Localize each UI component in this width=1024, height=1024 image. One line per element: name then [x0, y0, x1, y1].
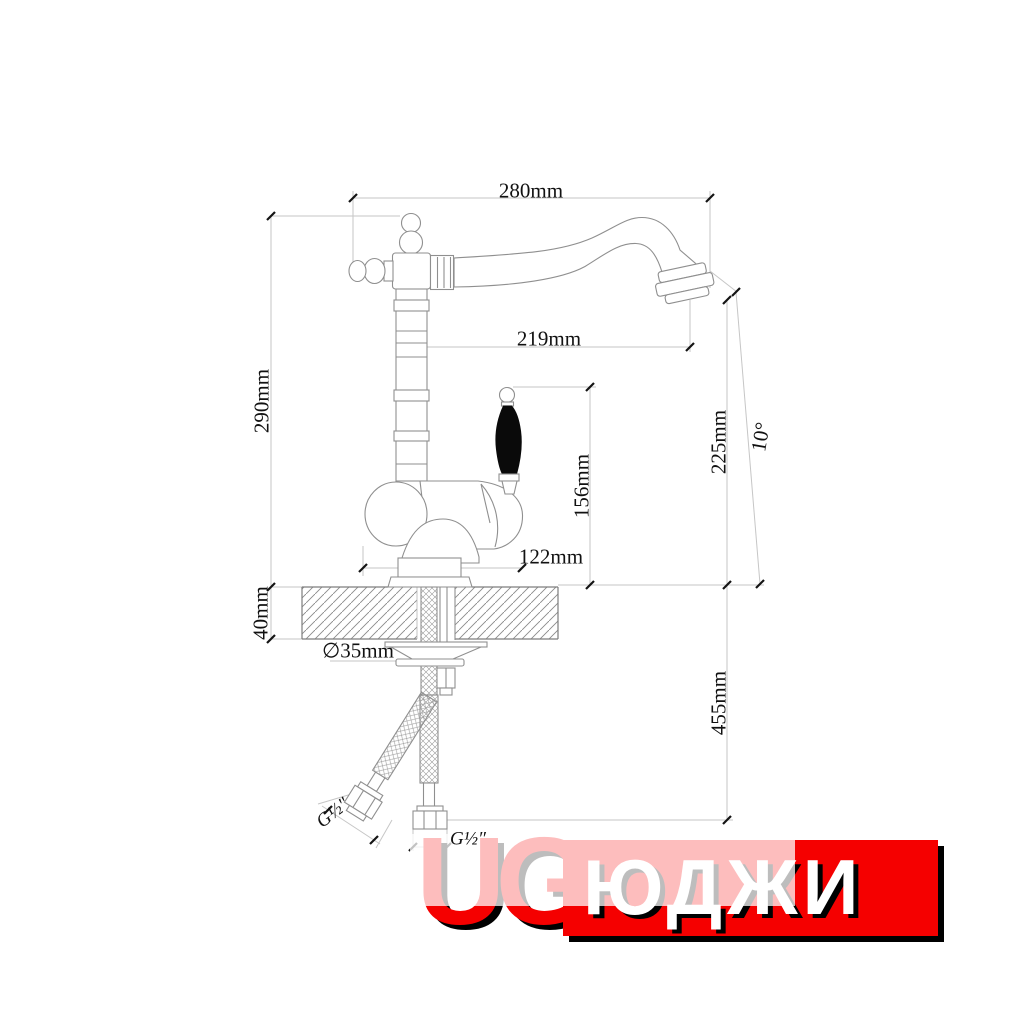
faucet-dimension-drawing: UG ЮДЖИ 280mm 219mm 290mm 40mm 225mm 10°…: [0, 0, 1024, 1024]
finial-ball-top: [402, 214, 421, 233]
logo-cyrillic: ЮДЖИ: [563, 840, 938, 934]
faucet-body: [349, 214, 716, 588]
column: [396, 289, 427, 481]
threaded-shank: [421, 587, 437, 695]
logo-box: ЮДЖИ: [563, 840, 938, 936]
base-flange: [388, 577, 472, 587]
mounting-bracket: [385, 642, 487, 647]
valve-cross: [393, 253, 431, 289]
handle-lever: [496, 406, 521, 474]
logo-latin: UG: [416, 826, 582, 938]
handle-ball: [500, 388, 515, 403]
mounting-washer: [396, 659, 464, 666]
